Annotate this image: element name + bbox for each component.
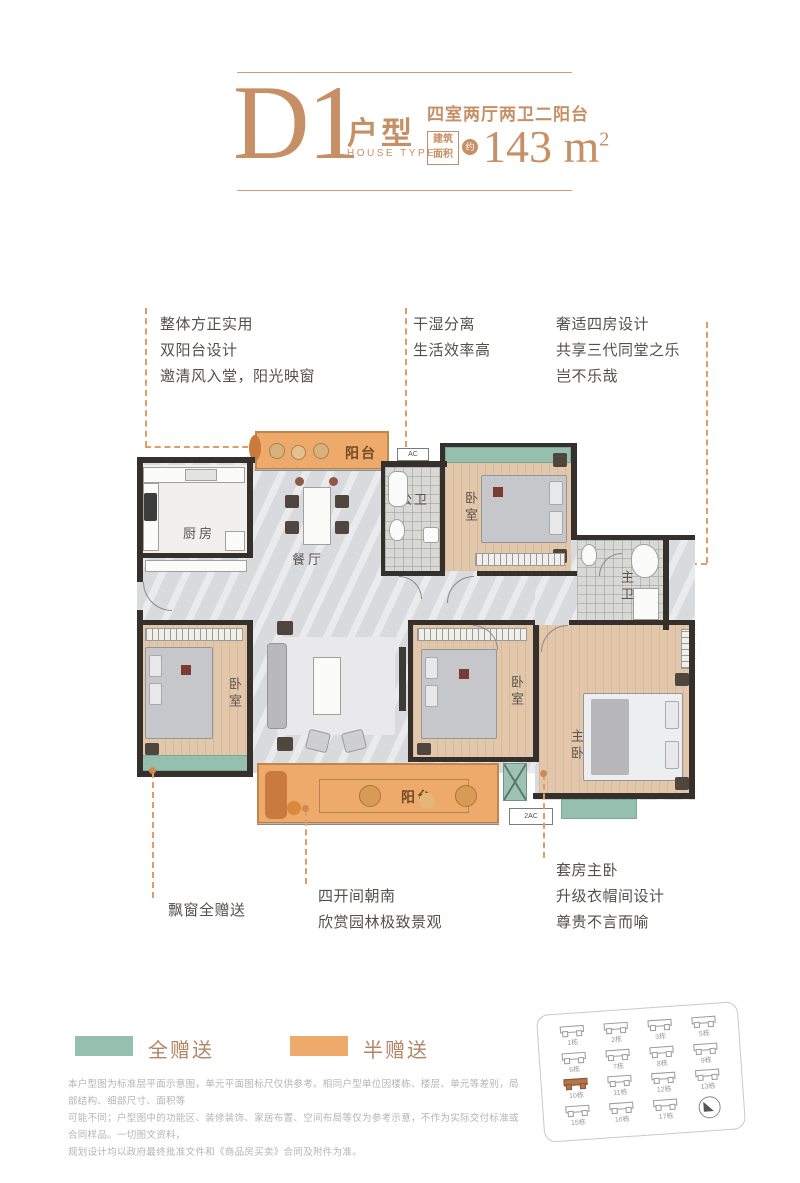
- siteplan-building: 1栋: [560, 1025, 585, 1049]
- siteplan: 1栋 2栋 3栋 5栋 6栋 7栋 8栋 9栋 10栋 11栋 12栋 13栋 …: [536, 1001, 746, 1143]
- wardrobe-icon: [475, 553, 565, 566]
- siteplan-building: 9栋: [693, 1042, 718, 1066]
- legend-swatch-full-gift: [75, 1036, 133, 1056]
- callout-line: 双阳台设计: [160, 338, 315, 364]
- siteplan-building: 12栋: [651, 1072, 676, 1096]
- siteplan-building: 6栋: [561, 1052, 586, 1076]
- chair-icon: [335, 521, 349, 534]
- chair-icon: [335, 495, 349, 508]
- nightstand-icon: [675, 777, 689, 790]
- chair-icon: [285, 521, 299, 534]
- siteplan-building: 17栋: [653, 1098, 678, 1122]
- ac-label: 2AC: [524, 813, 538, 820]
- pillow-icon: [149, 655, 162, 677]
- callout-top-left: 整体方正实用 双阳台设计 邀清风入堂，阳光映窗: [160, 312, 315, 390]
- callout-bottom-left: 飘窗全赠送: [168, 898, 246, 924]
- leader-line: [305, 810, 307, 884]
- side-table: [277, 737, 293, 751]
- building-label: 13栋: [700, 1081, 715, 1092]
- building-icon: [561, 1052, 586, 1065]
- wall: [137, 457, 255, 463]
- callout-line: 尊贵不言而喻: [556, 910, 665, 936]
- ac-label: AC: [408, 451, 418, 458]
- building-label: 10栋: [569, 1090, 584, 1101]
- wall: [533, 625, 539, 757]
- area-number: 143 m: [483, 121, 599, 172]
- callout-line: 套房主卧: [556, 858, 665, 884]
- legend-label-full-gift: 全赠送: [148, 1034, 214, 1063]
- callout-top-right: 奢适四房设计 共享三代同堂之乐 岂不乐哉: [556, 312, 680, 390]
- cushion-icon: [455, 785, 477, 807]
- callout-line: 四开间朝南: [318, 884, 442, 910]
- siteplan-building: 3栋: [647, 1019, 672, 1043]
- wall: [663, 540, 669, 630]
- leader-dot: [149, 767, 156, 774]
- washbasin-icon: [423, 527, 439, 543]
- area-label-line2: 面积: [428, 147, 458, 162]
- tv-icon: [399, 647, 406, 711]
- bay-window-full-gift: [561, 799, 637, 819]
- area-approx-badge: 约: [462, 139, 478, 155]
- cushion-icon: [359, 785, 381, 807]
- callout-line: 整体方正实用: [160, 312, 315, 338]
- wall: [571, 443, 577, 540]
- wall: [569, 620, 695, 625]
- pillow-icon: [549, 511, 563, 535]
- flower-icon: [265, 771, 287, 819]
- callout-bottom-right: 套房主卧 升级衣帽间设计 尊贵不言而喻: [556, 858, 665, 936]
- area-label-box: 建筑 面积: [427, 131, 459, 165]
- area-label-line1: 建筑: [428, 132, 458, 147]
- callout-line: 岂不乐哉: [556, 364, 680, 390]
- cushion-icon: [291, 445, 306, 460]
- floorplan-page: D1 户型 HOUSE TYPE 四室两厅两卫二阳台 建筑 面积 约 143 m…: [0, 0, 800, 1183]
- siteplan-building-current: 10栋: [563, 1078, 588, 1102]
- leader-dot: [302, 805, 309, 812]
- building-label: 3栋: [655, 1031, 667, 1042]
- building-icon: [695, 1069, 720, 1082]
- pillow-icon: [425, 685, 438, 707]
- table-icon: [419, 793, 435, 809]
- wall: [408, 620, 535, 625]
- wall: [247, 620, 253, 773]
- building-label: 1栋: [567, 1038, 579, 1049]
- disclaimer-line: 可能不同；户型图中的功能区、装修装饰、家居布置、空间布局等仅为参考示意，不作为实…: [68, 1110, 526, 1144]
- wall: [533, 793, 695, 799]
- disclaimer-line: 规划设计均以政府最终批准文件和《商品房买卖》合同及附件为准。: [68, 1144, 526, 1161]
- building-icon: [691, 1016, 716, 1029]
- wall: [381, 571, 445, 576]
- pillow-icon: [665, 741, 679, 769]
- pot-icon: [329, 477, 338, 486]
- building-icon: [609, 1101, 634, 1114]
- callout-bottom-mid: 四开间朝南 欣赏园林极致景观: [318, 884, 442, 936]
- bathtub-icon: [388, 471, 408, 507]
- legend-label-half-gift: 半赠送: [363, 1034, 429, 1063]
- ac-platform-top: AC: [397, 448, 429, 461]
- building-icon-highlighted: [563, 1078, 588, 1091]
- ac-platform-bottom: 2AC: [509, 808, 553, 825]
- callout-line: 生活效率高: [413, 338, 491, 364]
- plan-type-label: 户型: [347, 108, 415, 153]
- kitchen-label: 厨房: [183, 523, 215, 542]
- wall: [381, 461, 447, 467]
- building-icon: [605, 1049, 630, 1062]
- bedroom-mid-label: 卧室: [507, 675, 526, 709]
- siteplan-building: 16栋: [609, 1101, 634, 1125]
- sink-icon: [185, 469, 217, 481]
- pillow-icon: [149, 683, 162, 705]
- header-rule-bottom: [237, 190, 572, 191]
- building-label: 16栋: [615, 1114, 630, 1125]
- shaft-full-gift: [503, 763, 527, 801]
- wall: [141, 553, 253, 558]
- pot-icon: [295, 477, 304, 486]
- room-bedroom-top: 卧室: [445, 447, 571, 571]
- side-table: [277, 621, 293, 635]
- siteplan-building: 11栋: [607, 1075, 632, 1099]
- building-label: 12栋: [657, 1084, 672, 1095]
- disclaimer-line: 本户型图为标准层平面示意图，单元平面图标尺仅供参考。相同户型单位因楼栋、楼层、单…: [68, 1076, 526, 1110]
- building-icon: [565, 1104, 590, 1117]
- wall: [571, 535, 695, 540]
- building-icon: [693, 1042, 718, 1055]
- blanket-accent: [459, 669, 469, 679]
- siteplan-building: 7栋: [605, 1049, 630, 1073]
- callout-line: 共享三代同堂之乐: [556, 338, 680, 364]
- sofa-icon: [267, 643, 287, 729]
- blanket-accent: [181, 665, 191, 675]
- callout-line: 飘窗全赠送: [168, 898, 246, 924]
- balcony-top: 阳台: [255, 431, 389, 471]
- pillow-icon: [665, 701, 679, 729]
- leader-dot: [540, 770, 547, 777]
- area-value: 143 m2: [483, 120, 609, 173]
- balcony-top-label: 阳台: [345, 443, 377, 463]
- serving-counter: [145, 560, 247, 572]
- blanket-accent: [493, 487, 503, 497]
- callout-line: 邀清风入堂，阳光映窗: [160, 364, 315, 390]
- building-label: 8栋: [657, 1058, 669, 1069]
- cushion-icon: [313, 443, 329, 459]
- wall: [445, 443, 571, 447]
- leader-line: [152, 772, 154, 898]
- wall: [689, 625, 695, 799]
- building-label: 5栋: [699, 1028, 711, 1039]
- siteplan-building: 5栋: [691, 1016, 716, 1040]
- pillow-icon: [549, 481, 563, 505]
- nightstand-icon: [553, 453, 567, 467]
- dining-label: 餐厅: [292, 549, 324, 568]
- fridge-icon: [225, 531, 245, 551]
- building-label: 9栋: [701, 1055, 713, 1066]
- callout-top-mid: 干湿分离 生活效率高: [413, 312, 491, 364]
- wall: [477, 571, 577, 576]
- blanket-icon: [591, 699, 629, 775]
- siteplan-building: 15栋: [565, 1104, 590, 1128]
- building-icon: [647, 1019, 672, 1032]
- wardrobe-icon: [417, 628, 527, 641]
- room-public-bath: 公卫: [385, 467, 443, 571]
- toilet-icon: [581, 544, 597, 566]
- compass-icon: [698, 1095, 721, 1118]
- balcony-bottom: 阳台: [257, 763, 499, 825]
- callout-line: 干湿分离: [413, 312, 491, 338]
- shower-icon: [633, 588, 659, 620]
- room-kitchen: 厨房: [141, 465, 249, 556]
- building-label: 11栋: [613, 1087, 628, 1098]
- callout-line: 奢适四房设计: [556, 312, 680, 338]
- plan-code: D1: [233, 70, 359, 176]
- flower-icon: [287, 801, 301, 815]
- building-label: 15栋: [571, 1117, 586, 1128]
- pillow-icon: [425, 657, 438, 679]
- siteplan-building: 13栋: [695, 1069, 720, 1093]
- building-icon: [607, 1075, 632, 1088]
- bedroom-left-label: 卧室: [225, 677, 244, 711]
- floorplan: 阳台 阳台 厨房 公卫: [137, 425, 702, 837]
- callout-line: 升级衣帽间设计: [556, 884, 665, 910]
- wall: [247, 463, 253, 556]
- wardrobe-icon: [145, 628, 243, 641]
- stove-icon: [144, 493, 157, 521]
- leader-line: [706, 322, 708, 563]
- legend-swatch-half-gift: [290, 1036, 348, 1056]
- siteplan-building: 2栋: [604, 1022, 629, 1046]
- building-label: 7栋: [613, 1061, 625, 1072]
- wall: [381, 467, 385, 571]
- building-label: 6栋: [569, 1064, 581, 1075]
- dining-table: [303, 487, 331, 545]
- siteplan-building: 8栋: [649, 1045, 674, 1069]
- disclaimer: 本户型图为标准层平面示意图，单元平面图标尺仅供参考。相同户型单位因楼栋、楼层、单…: [68, 1076, 526, 1161]
- toilet-icon: [389, 519, 405, 541]
- building-icon: [653, 1098, 678, 1111]
- bay-window-full-gift: [141, 755, 249, 771]
- nightstand-icon: [145, 743, 159, 755]
- balcony-mat: [319, 779, 469, 813]
- bedroom-top-label: 卧室: [461, 491, 480, 525]
- bathtub-icon: [631, 544, 659, 578]
- wall: [408, 757, 539, 762]
- plan-type-en: HOUSE TYPE: [347, 148, 436, 159]
- callout-line: 欣赏园林极致景观: [318, 910, 442, 936]
- building-label: 2栋: [611, 1034, 623, 1045]
- wall: [137, 457, 143, 582]
- wall: [440, 443, 445, 571]
- coffee-table: [313, 657, 341, 715]
- building-label: 17栋: [658, 1111, 673, 1122]
- wall: [137, 610, 143, 777]
- building-icon: [651, 1072, 676, 1085]
- nightstand-icon: [675, 673, 689, 686]
- building-icon: [604, 1022, 629, 1035]
- chair-icon: [285, 495, 299, 508]
- area-superscript: 2: [599, 129, 609, 151]
- building-icon: [649, 1045, 674, 1058]
- wall: [137, 620, 253, 625]
- wall: [408, 625, 413, 757]
- nightstand-icon: [417, 743, 431, 755]
- room-bedroom-left: 卧室: [141, 625, 249, 771]
- cushion-icon: [269, 443, 285, 459]
- building-icon: [560, 1025, 585, 1038]
- leader-line: [543, 774, 545, 858]
